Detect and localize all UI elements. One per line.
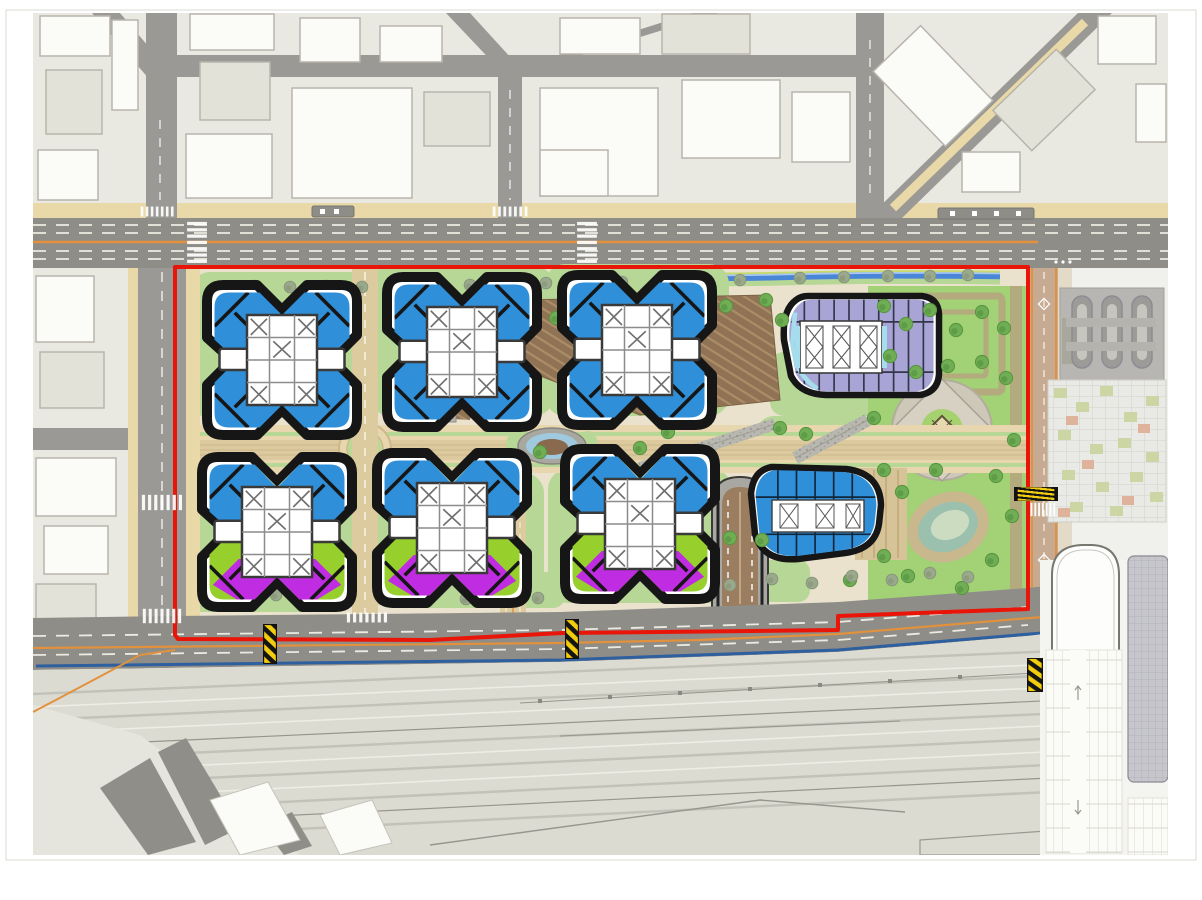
treeS-instance [540,277,552,289]
treeS-instance [886,574,898,586]
bus-terminal [1060,288,1164,380]
treeG-instance [755,533,768,546]
treeS-instance [962,571,974,583]
treeG-instance [723,531,736,544]
treeG-instance [997,321,1010,334]
treeS-instance [734,274,746,286]
mosaic-plaza [1048,380,1166,522]
treeS-instance [532,592,544,604]
treeG-instance [877,463,890,476]
treeG-instance [899,317,912,330]
treeG-instance [877,299,890,312]
treeG-instance [975,355,988,368]
treeS-instance [794,272,806,284]
treeG-instance [867,411,880,424]
treeG-instance [985,553,998,566]
treeG-instance [1007,433,1020,446]
treeG-instance [975,305,988,318]
treeS-instance [806,577,818,589]
treeS-instance [962,269,974,281]
treeG-instance [719,299,732,312]
treeG-instance [923,303,936,316]
treeG-instance [955,581,968,594]
treeG-instance [901,569,914,582]
treeG-instance [533,445,546,458]
treeS-instance [838,271,850,283]
treeS-instance [766,573,778,585]
treeS-instance [924,567,936,579]
treeS-instance [924,270,936,282]
treeG-instance [759,293,772,306]
treeS-instance [846,570,858,582]
treeG-instance [999,371,1012,384]
hazbar-instance [1028,658,1043,691]
master-plan-drawing [0,0,1202,900]
road-dots [1054,260,1071,263]
treeG-instance [877,549,890,562]
treeS-instance [724,579,736,591]
treeG-instance [799,427,812,440]
hazbar-instance [1016,487,1056,501]
treeG-instance [989,469,1002,482]
station-area [1040,545,1168,855]
treeG-instance [633,441,646,454]
treeS-instance [882,270,894,282]
treeG-instance [883,349,896,362]
hazbar-instance [566,620,579,659]
treeG-instance [773,421,786,434]
hazbar-instance [264,625,277,664]
treeG-instance [941,359,954,372]
treeG-instance [909,365,922,378]
treeG-instance [949,323,962,336]
treeG-instance [929,463,942,476]
treeG-instance [1005,509,1018,522]
treeG-instance [775,313,788,326]
treeG-instance [895,485,908,498]
site-plan-page [0,0,1202,900]
west-arterial-road [128,268,200,664]
